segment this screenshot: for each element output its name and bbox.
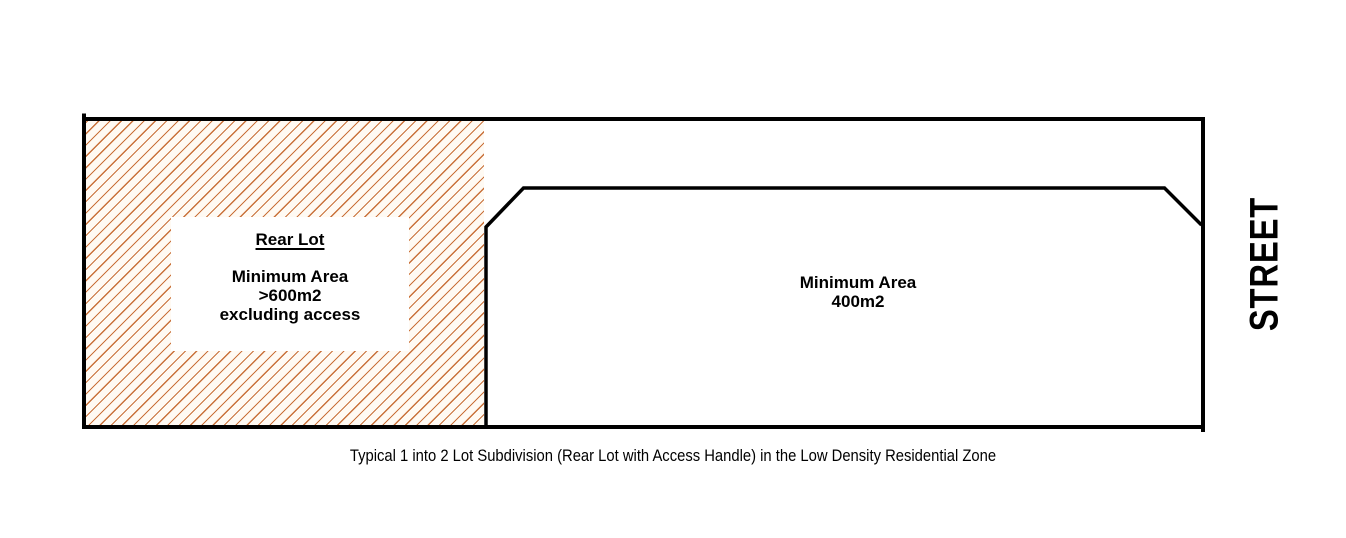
subdivision-diagram: Rear Lot Minimum Area >600m2 excluding a…: [0, 0, 1346, 538]
rear-lot-area-line-3: excluding access: [171, 305, 409, 324]
rear-lot-label-box: Rear Lot Minimum Area >600m2 excluding a…: [171, 217, 409, 351]
rear-lot-area-line-2: >600m2: [171, 286, 409, 305]
front-lot-label: Minimum Area 400m2: [738, 273, 978, 311]
front-lot-area-line-1: Minimum Area: [738, 273, 978, 292]
rear-lot-area-line-1: Minimum Area: [171, 267, 409, 286]
front-lot-area-line-2: 400m2: [738, 292, 978, 311]
rear-lot-area-text: Minimum Area >600m2 excluding access: [171, 267, 409, 324]
rear-lot-title: Rear Lot: [171, 230, 409, 250]
diagram-caption: Typical 1 into 2 Lot Subdivision (Rear L…: [87, 446, 1258, 466]
street-label: STREET: [1243, 197, 1288, 331]
